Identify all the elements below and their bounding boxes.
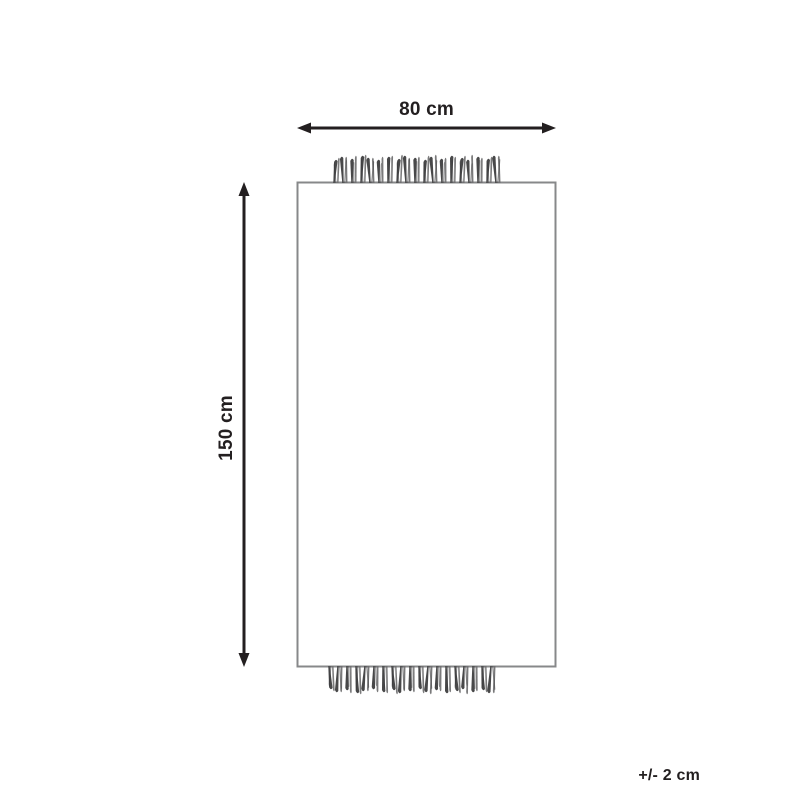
height-dimension-arrow [239,182,250,667]
rug-dimension-diagram: 80 cm 150 cm +/- 2 cm [0,0,800,800]
fringe-bottom [327,666,495,694]
width-label: 80 cm [297,99,556,121]
width-dimension-arrow [297,123,556,134]
height-label: 150 cm [216,378,238,478]
rug-outline [298,183,556,667]
tolerance-label: +/- 2 cm [560,767,700,785]
fringe-top [332,155,500,183]
